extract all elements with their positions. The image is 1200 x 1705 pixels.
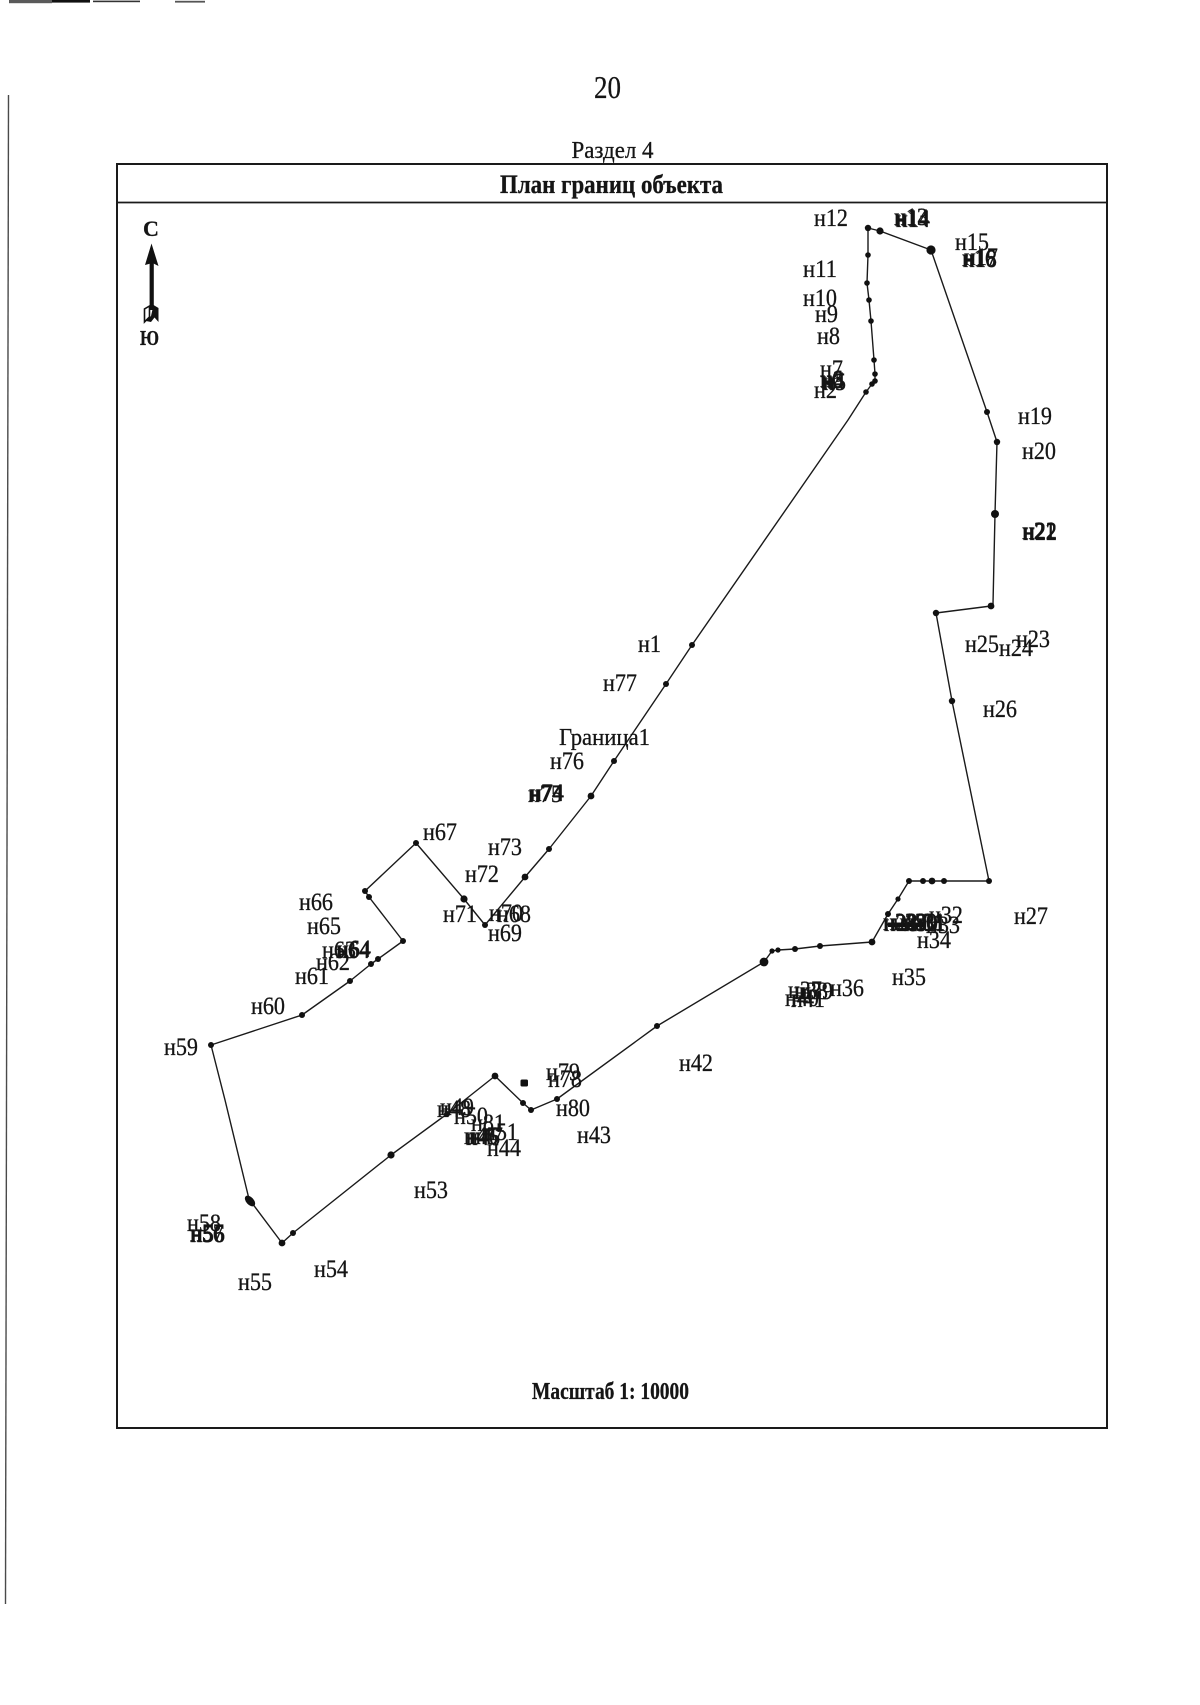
svg-text:Ю: Ю xyxy=(140,326,159,350)
svg-text:н43: н43 xyxy=(577,1122,611,1149)
svg-text:н60: н60 xyxy=(251,993,285,1020)
svg-text:н2: н2 xyxy=(814,377,837,404)
svg-text:н64: н64 xyxy=(336,937,370,964)
svg-text:н36: н36 xyxy=(830,975,864,1002)
svg-text:План границ объекта: План границ объекта xyxy=(500,170,723,199)
svg-text:н72: н72 xyxy=(465,861,499,888)
svg-text:С: С xyxy=(143,216,159,241)
svg-text:н44: н44 xyxy=(487,1135,521,1162)
svg-text:н78: н78 xyxy=(548,1066,582,1093)
svg-text:20: 20 xyxy=(594,69,621,105)
svg-text:н76: н76 xyxy=(550,748,584,775)
svg-text:н19: н19 xyxy=(1018,403,1052,430)
svg-text:н54: н54 xyxy=(314,1256,348,1283)
svg-text:н20: н20 xyxy=(1022,438,1056,465)
svg-text:н24: н24 xyxy=(999,635,1033,662)
svg-text:н77: н77 xyxy=(603,670,637,697)
svg-text:н11: н11 xyxy=(803,256,837,283)
svg-text:н25: н25 xyxy=(965,631,999,658)
svg-text:н12: н12 xyxy=(814,205,848,232)
svg-text:н18: н18 xyxy=(963,246,997,273)
svg-text:Раздел 4: Раздел 4 xyxy=(572,138,654,164)
svg-text:н14: н14 xyxy=(895,205,929,232)
svg-text:н66: н66 xyxy=(299,889,333,916)
svg-text:н74: н74 xyxy=(529,780,563,807)
svg-text:н69: н69 xyxy=(488,920,522,947)
svg-text:н73: н73 xyxy=(488,834,522,861)
svg-text:Масштаб 1: 10000: Масштаб 1: 10000 xyxy=(532,1379,689,1405)
svg-text:н34: н34 xyxy=(917,927,951,954)
svg-text:н27: н27 xyxy=(1014,903,1048,930)
svg-text:н65: н65 xyxy=(307,913,341,940)
svg-text:н42: н42 xyxy=(679,1050,713,1077)
svg-text:н35: н35 xyxy=(892,964,926,991)
svg-text:н71: н71 xyxy=(443,901,477,928)
svg-text:н26: н26 xyxy=(983,696,1017,723)
svg-text:н1: н1 xyxy=(638,631,661,658)
svg-text:н53: н53 xyxy=(414,1177,448,1204)
svg-text:н80: н80 xyxy=(556,1095,590,1122)
svg-text:н8: н8 xyxy=(817,323,840,350)
svg-text:н67: н67 xyxy=(423,819,457,846)
svg-text:н41: н41 xyxy=(791,986,825,1013)
svg-text:н22: н22 xyxy=(1023,518,1057,545)
svg-text:н59: н59 xyxy=(164,1034,198,1061)
svg-text:н56: н56 xyxy=(190,1221,224,1248)
svg-text:н55: н55 xyxy=(238,1269,272,1296)
